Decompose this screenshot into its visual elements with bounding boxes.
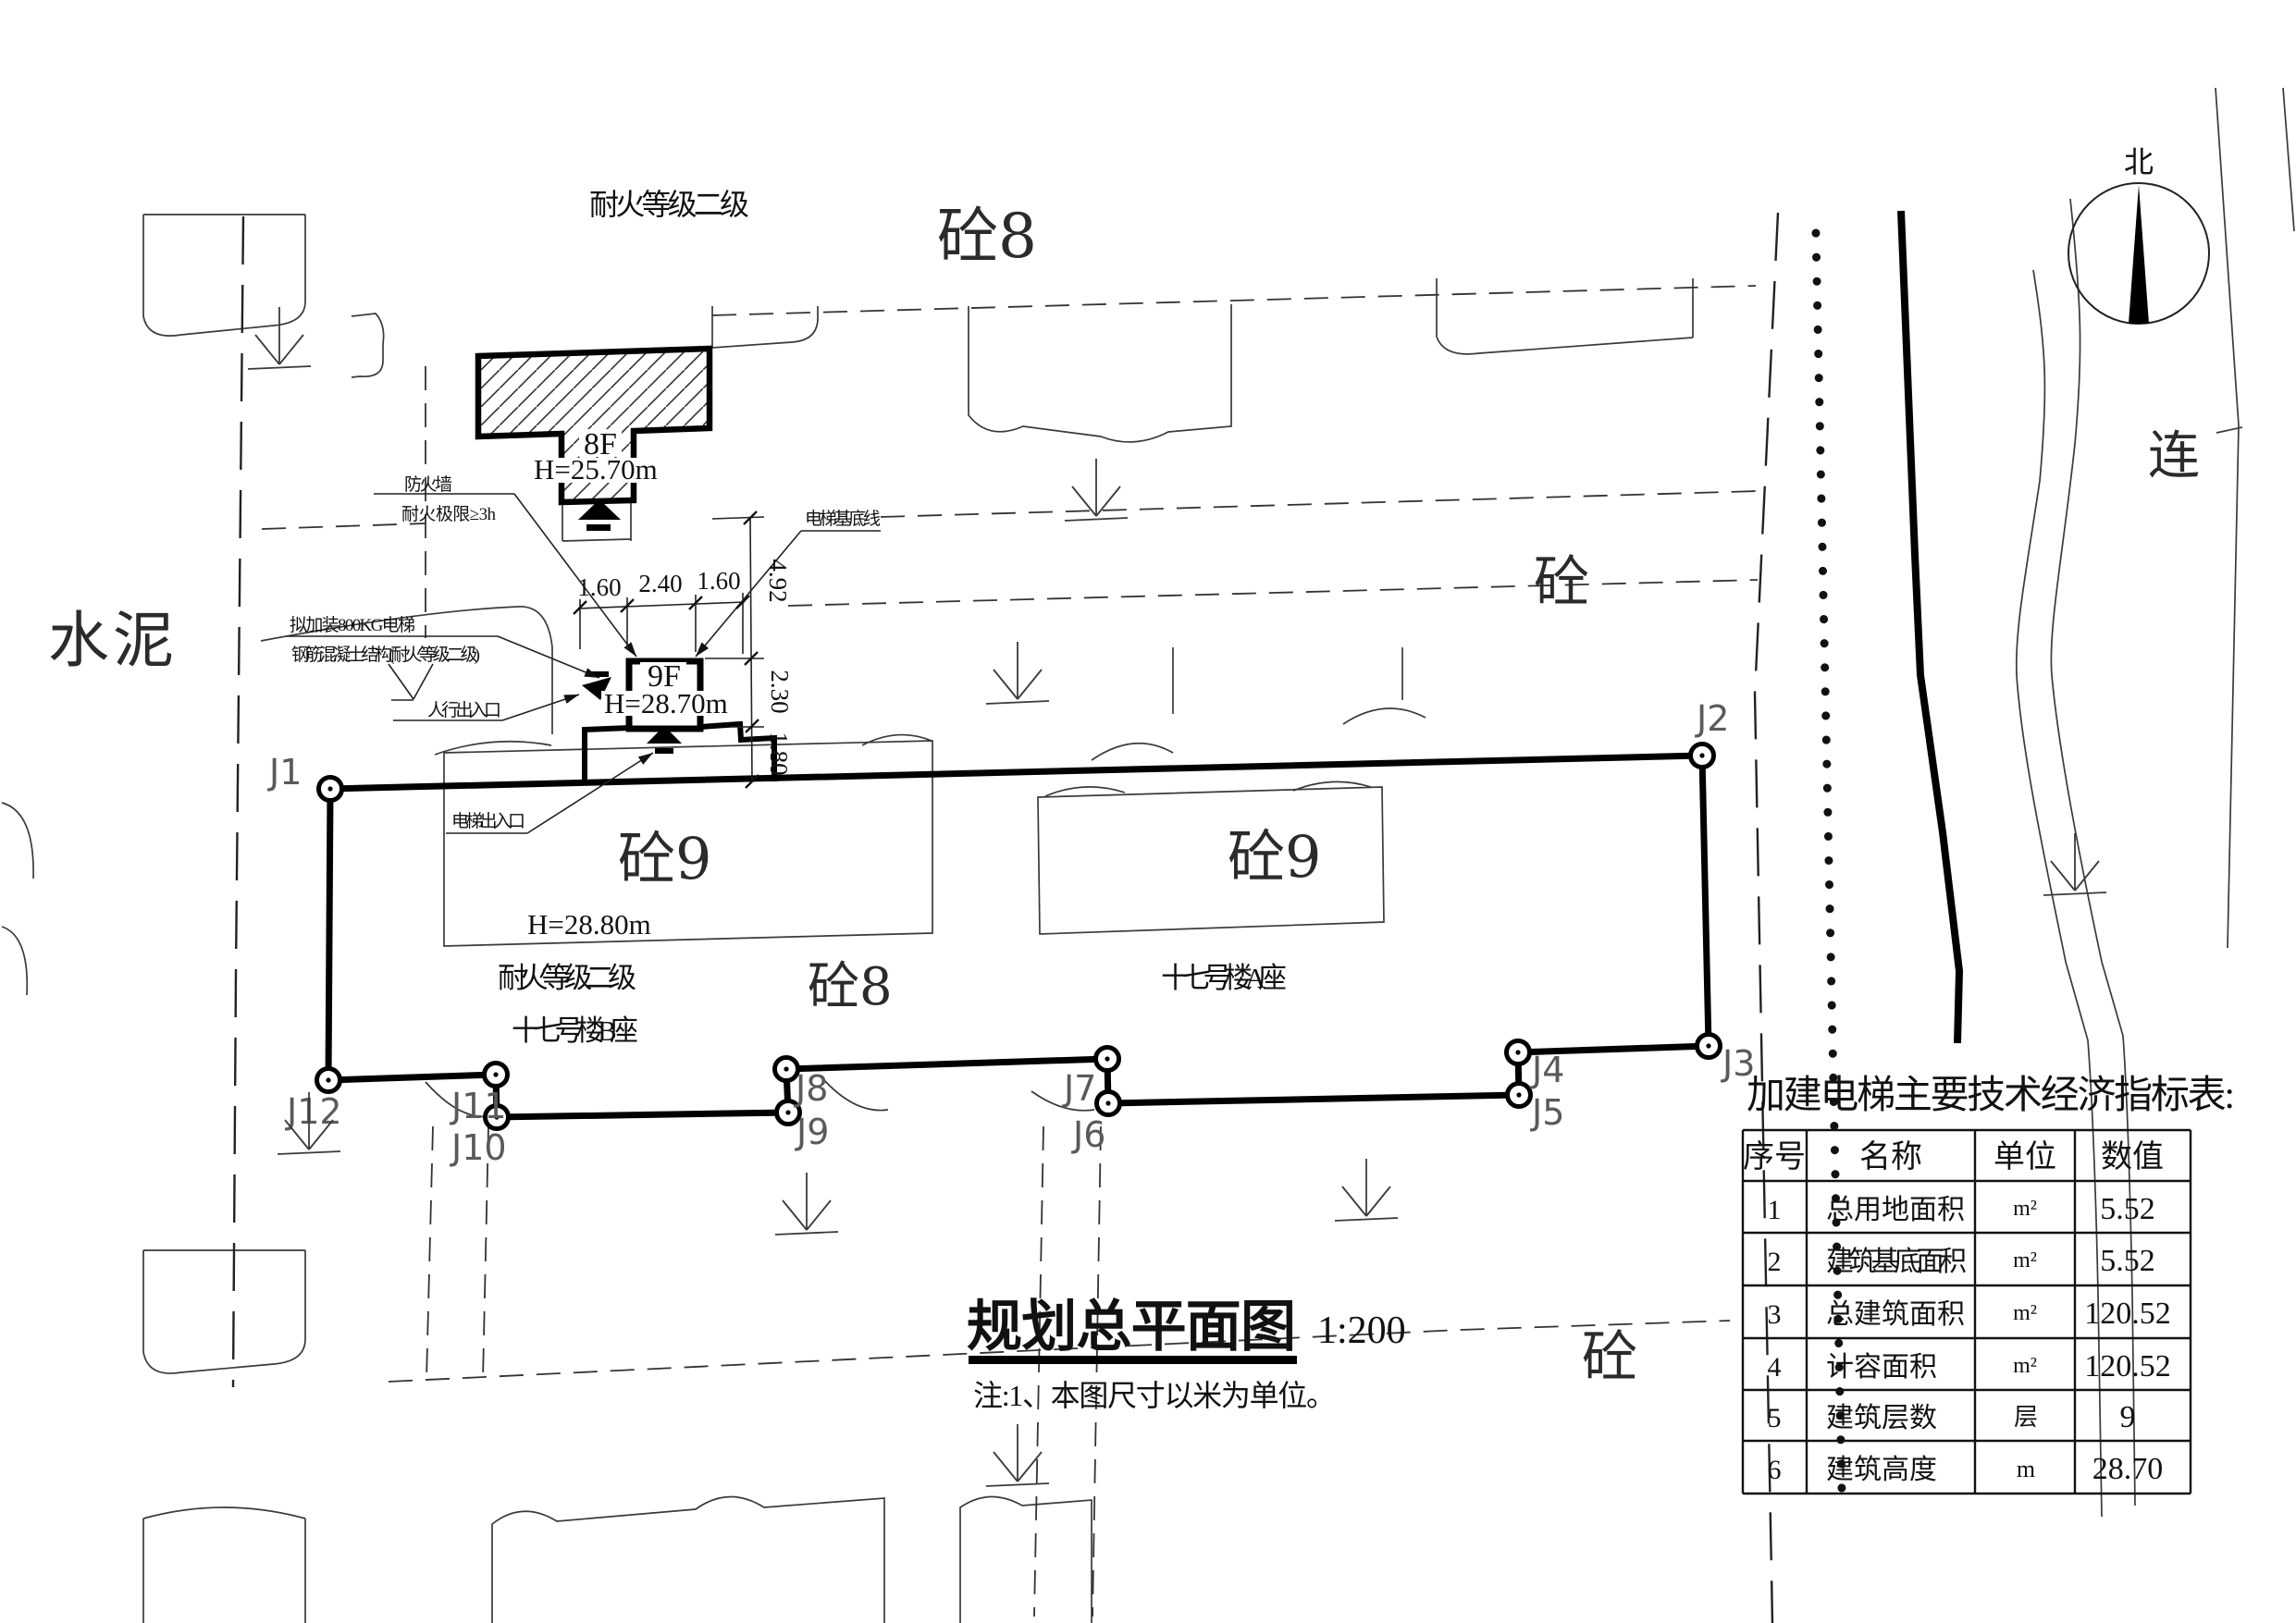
fire-rating-top-label: 耐火等级二级 <box>589 188 749 221</box>
table-title: 加建电梯主要技术经济指标表: <box>1747 1075 2235 1117</box>
concrete-bottom-label: 砼 <box>1582 1325 1637 1390</box>
svg-text:5.52: 5.52 <box>2100 1244 2155 1278</box>
existing-height-label: H=25.70m <box>534 453 658 486</box>
svg-text:120.52: 120.52 <box>2084 1297 2171 1331</box>
building-b-height-label: H=28.80m <box>527 908 651 941</box>
svg-text:m²: m² <box>2013 1301 2037 1325</box>
new-elevator-9f: 9F H=28.70m <box>582 659 774 781</box>
svg-text:建筑层数: 建筑层数 <box>1826 1403 1937 1433</box>
building-a-name-label: 十七号楼A座 <box>1161 962 1287 994</box>
plot-boundary: J1 J2 J3 J4 J5 J6 J7 J8 J9 J10 J11 J12 <box>267 698 1755 1168</box>
title-underline <box>969 1356 1297 1364</box>
svg-text:m²: m² <box>2013 1197 2037 1221</box>
concrete8-top-label: 砼8 <box>937 201 1037 272</box>
svg-text:2: 2 <box>1768 1247 1782 1277</box>
dim-left: 1.60 <box>577 573 621 601</box>
svg-text:建筑基底面积: 建筑基底面积 <box>1826 1247 1967 1277</box>
j12-label: J12 <box>285 1091 342 1132</box>
header-no: 序号 <box>1743 1139 1806 1174</box>
title-block: 规划总平面图 1:200 注:1、本图尺寸以米为单位。 <box>967 1297 1406 1412</box>
elevator-baseline-label: 电梯基底线 <box>805 509 881 529</box>
svg-text:28.70: 28.70 <box>2092 1452 2164 1486</box>
indicator-table: 加建电梯主要技术经济指标表: 序号 名称 单位 数值 1 总用地面积 m² <box>1743 1075 2235 1494</box>
svg-text:5.52: 5.52 <box>2100 1192 2155 1226</box>
svg-text:120.52: 120.52 <box>2084 1349 2171 1383</box>
concrete9-left-label: 砼9 <box>618 825 711 892</box>
proposed-elevator-label: 拟加装800KG电梯 <box>290 615 415 635</box>
j2-label: J2 <box>1695 698 1729 739</box>
fire-limit-label: 耐火极限≥3h <box>401 504 497 524</box>
dim-v-bottom: 1.80 <box>765 732 793 775</box>
dim-right: 1.60 <box>697 567 740 595</box>
firewall-label: 防火墙 <box>404 474 452 495</box>
svg-text:4: 4 <box>1768 1352 1782 1383</box>
road-centerline <box>1901 211 1959 1043</box>
drawing-note: 注:1、本图尺寸以米为单位。 <box>973 1379 1336 1412</box>
j6-label: J6 <box>1071 1114 1105 1155</box>
drawing-scale: 1:200 <box>1317 1309 1406 1352</box>
j5-label: J5 <box>1530 1092 1564 1133</box>
header-value: 数值 <box>2101 1139 2164 1174</box>
boundary-point-labels: J1 J2 J3 J4 J5 J6 J7 J8 J9 J10 J11 J12 <box>267 698 1755 1168</box>
header-name: 名称 <box>1859 1139 1922 1174</box>
existing-building-8f: 8F H=25.70m <box>478 349 710 531</box>
elevator-entrance-label: 电梯出入口 <box>451 811 525 831</box>
j1-label: J1 <box>267 752 302 793</box>
svg-text:3: 3 <box>1768 1299 1782 1330</box>
j9-label: J9 <box>795 1112 829 1152</box>
building-b-fire-label: 耐火等级二级 <box>498 962 636 994</box>
site-plan-sheet: J1 J2 J3 J4 J5 J6 J7 J8 J9 J10 J11 J12 8… <box>0 0 2296 1623</box>
svg-text:建筑高度: 建筑高度 <box>1826 1455 1937 1485</box>
dim-mid: 2.40 <box>638 570 682 597</box>
header-unit: 单位 <box>1994 1139 2056 1174</box>
j7-label: J7 <box>1062 1068 1096 1109</box>
j8-label: J8 <box>794 1068 828 1109</box>
table-row: 6 建筑高度 m 28.70 <box>1768 1452 2164 1486</box>
dim-v-top: 4.92 <box>764 559 792 602</box>
table-row: 3 总建筑面积 m² 120.52 <box>1768 1297 2171 1331</box>
svg-text:总用地面积: 总用地面积 <box>1826 1195 1965 1225</box>
j4-label: J4 <box>1530 1050 1564 1090</box>
concrete-right-label: 砼 <box>1534 550 1589 615</box>
cement-label: 水泥 <box>48 605 178 676</box>
svg-text:层: 层 <box>2014 1404 2038 1431</box>
j10-label: J10 <box>450 1127 507 1168</box>
j11-label: J11 <box>450 1086 507 1126</box>
road-name-label: 连 <box>2148 426 2200 486</box>
building-b-name-label: 十七号楼B座 <box>512 1014 638 1047</box>
svg-text:9: 9 <box>2120 1400 2136 1434</box>
svg-text:1: 1 <box>1768 1195 1782 1225</box>
north-label: 北 <box>2124 145 2154 178</box>
table-row: 5 建筑层数 层 9 <box>1768 1400 2136 1434</box>
structure-label: 钢筋混凝土结构(耐火等级二级) <box>291 645 480 665</box>
drawing-title: 规划总平面图 <box>967 1297 1296 1358</box>
elevator-height-label: H=28.70m <box>604 687 728 719</box>
svg-text:m²: m² <box>2013 1354 2037 1378</box>
table-row: 4 计容面积 m² 120.52 <box>1768 1349 2171 1383</box>
svg-text:m²: m² <box>2013 1248 2037 1273</box>
svg-text:计容面积: 计容面积 <box>1826 1352 1937 1383</box>
svg-text:5: 5 <box>1768 1403 1782 1433</box>
north-needle-icon <box>2129 185 2149 324</box>
site-plan-drawing: J1 J2 J3 J4 J5 J6 J7 J8 J9 J10 J11 J12 8… <box>0 0 2296 1623</box>
svg-text:m: m <box>2017 1456 2035 1482</box>
north-compass: 北 <box>2068 145 2209 324</box>
concrete9-right-label: 砼9 <box>1228 823 1321 891</box>
dim-v-mid: 2.30 <box>766 670 794 713</box>
pedestrian-entrance-label: 人行出入口 <box>427 700 501 720</box>
svg-text:6: 6 <box>1768 1455 1782 1485</box>
concrete8-mid-label: 砼8 <box>808 957 893 1017</box>
svg-text:总建筑面积: 总建筑面积 <box>1826 1299 1965 1330</box>
